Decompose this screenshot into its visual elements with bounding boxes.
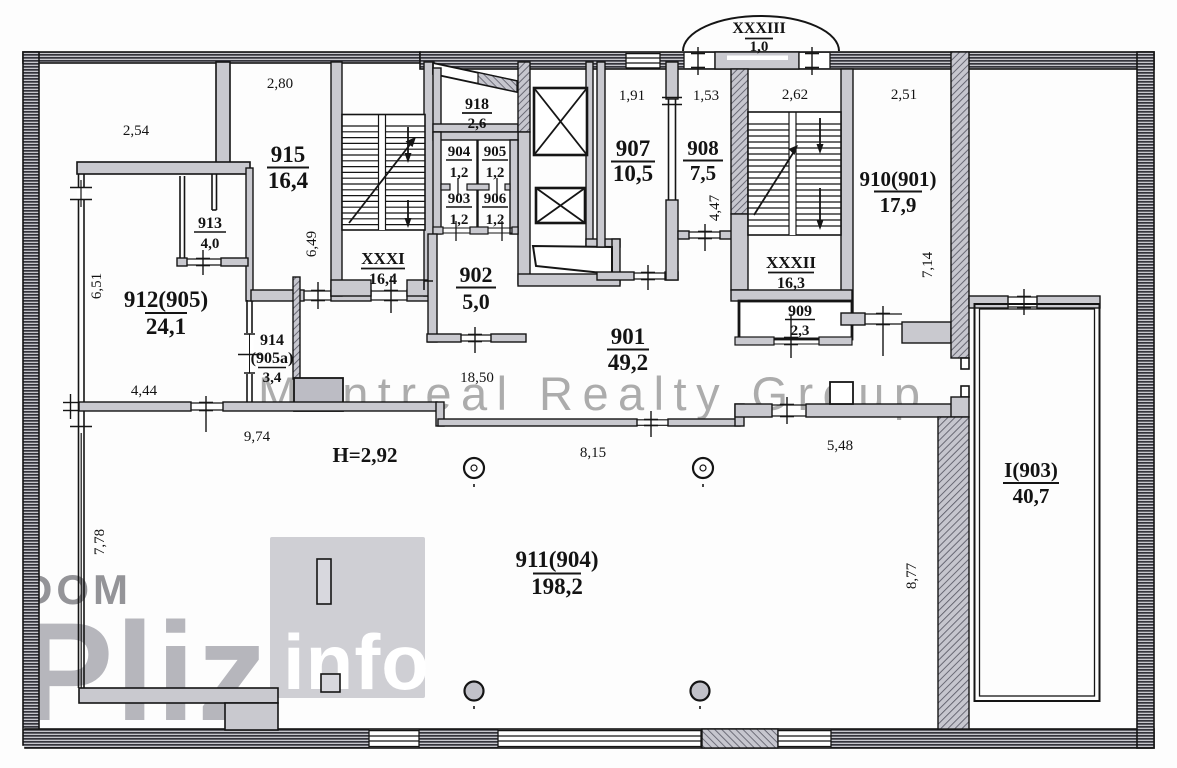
svg-text:I(903): I(903) <box>1004 458 1058 482</box>
svg-text:8,77: 8,77 <box>904 562 920 589</box>
svg-text:info: info <box>283 618 430 706</box>
svg-text:1,91: 1,91 <box>619 88 645 104</box>
svg-text:H=2,92: H=2,92 <box>332 443 397 467</box>
svg-text:7,14: 7,14 <box>920 251 936 278</box>
svg-text:198,2: 198,2 <box>531 574 583 599</box>
svg-text:915: 915 <box>271 142 306 167</box>
svg-text:906: 906 <box>484 191 507 207</box>
svg-text:2,51: 2,51 <box>891 87 917 103</box>
svg-text:1,2: 1,2 <box>450 165 469 181</box>
svg-text:1,2: 1,2 <box>450 212 469 228</box>
svg-text:6,51: 6,51 <box>89 273 105 299</box>
svg-text:907: 907 <box>616 136 651 161</box>
svg-text:913: 913 <box>198 215 222 232</box>
svg-text:910(901): 910(901) <box>860 167 937 191</box>
svg-text:XXXII: XXXII <box>766 253 816 272</box>
svg-text:49,2: 49,2 <box>608 350 648 375</box>
svg-text:4,47: 4,47 <box>707 194 723 221</box>
svg-text:7,78: 7,78 <box>92 529 108 555</box>
svg-text:2,62: 2,62 <box>782 87 808 103</box>
svg-text:912(905): 912(905) <box>124 287 208 312</box>
svg-text:1,0: 1,0 <box>750 39 769 55</box>
svg-text:4,44: 4,44 <box>131 383 158 399</box>
svg-text:5,0: 5,0 <box>462 289 490 314</box>
svg-text:8,15: 8,15 <box>580 445 606 461</box>
svg-text:911(904): 911(904) <box>515 547 598 572</box>
svg-text:5,48: 5,48 <box>827 438 853 454</box>
svg-text:9,74: 9,74 <box>244 429 271 445</box>
svg-text:1,2: 1,2 <box>486 165 505 181</box>
svg-text:40,7: 40,7 <box>1013 484 1050 508</box>
svg-text:2,3: 2,3 <box>791 323 810 339</box>
svg-text:904: 904 <box>448 144 471 160</box>
svg-text:2,80: 2,80 <box>267 76 293 92</box>
svg-text:6,49: 6,49 <box>304 231 320 257</box>
svg-text:24,1: 24,1 <box>146 314 186 339</box>
svg-text:XXXI: XXXI <box>361 249 405 268</box>
svg-text:901: 901 <box>611 324 646 349</box>
svg-text:2,54: 2,54 <box>123 123 150 139</box>
svg-text:7,5: 7,5 <box>690 161 716 185</box>
svg-text:17,9: 17,9 <box>880 193 917 217</box>
svg-text:4,0: 4,0 <box>201 236 220 252</box>
svg-text:XXXIII: XXXIII <box>732 20 785 37</box>
svg-text:1,53: 1,53 <box>693 88 719 104</box>
svg-text:16,4: 16,4 <box>268 168 309 193</box>
svg-text:914: 914 <box>260 332 284 349</box>
svg-text:(905a): (905a) <box>251 350 294 367</box>
svg-text:18,50: 18,50 <box>460 370 494 386</box>
svg-text:16,3: 16,3 <box>777 275 805 292</box>
svg-text:905: 905 <box>484 144 507 160</box>
svg-text:3,4: 3,4 <box>263 370 282 386</box>
svg-text:16,4: 16,4 <box>369 271 397 288</box>
svg-text:902: 902 <box>460 262 493 287</box>
svg-text:908: 908 <box>687 136 719 160</box>
svg-text:903: 903 <box>448 191 471 207</box>
svg-text:918: 918 <box>465 96 489 113</box>
svg-text:2,6: 2,6 <box>468 116 487 132</box>
svg-text:1,2: 1,2 <box>486 212 505 228</box>
svg-text:10,5: 10,5 <box>613 161 653 186</box>
